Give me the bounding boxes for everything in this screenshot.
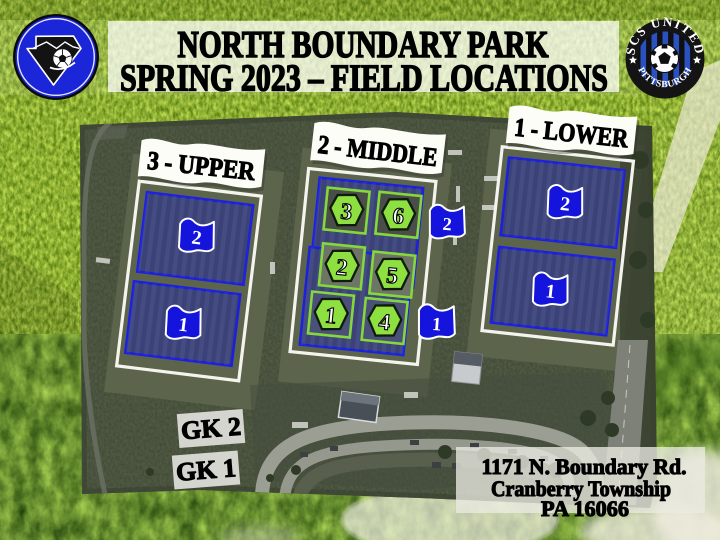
svg-text:SPRING 2023 – FIELD LOCATIONS: SPRING 2023 – FIELD LOCATIONS (120, 58, 608, 100)
svg-text:PA 16066: PA 16066 (541, 496, 629, 521)
svg-text:GK 1: GK 1 (175, 453, 237, 487)
svg-text:GK 2: GK 2 (180, 412, 242, 446)
svg-text:1: 1 (431, 313, 442, 335)
svg-text:2: 2 (442, 213, 453, 234)
